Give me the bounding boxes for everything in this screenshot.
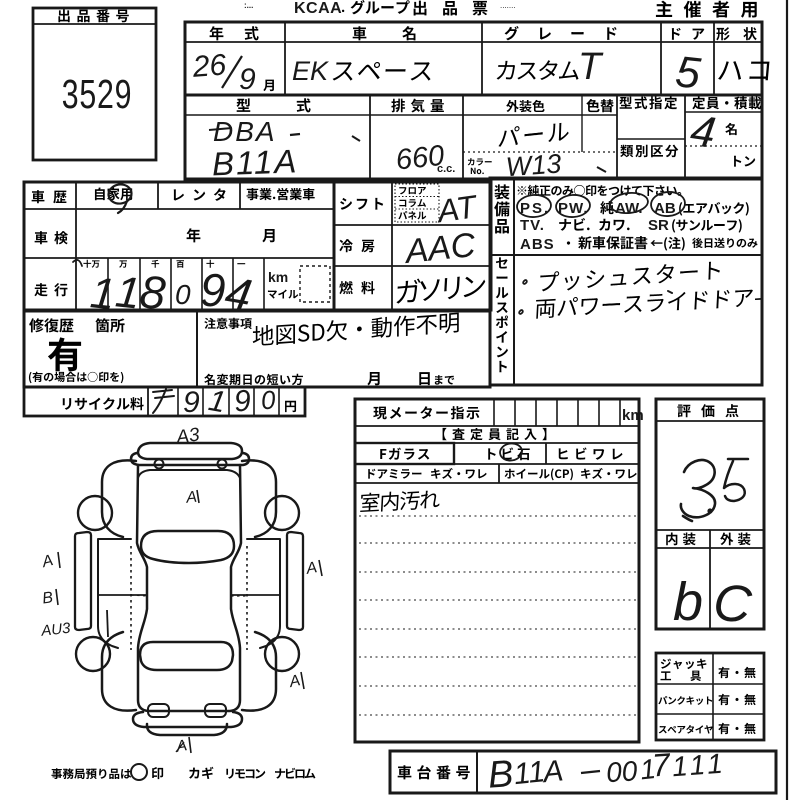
svg-text:km: km — [268, 269, 288, 285]
svg-text:B11A: B11A — [211, 142, 299, 182]
svg-text:DBA: DBA — [213, 116, 277, 147]
svg-text:AU3: AU3 — [39, 620, 71, 640]
svg-text:111: 111 — [671, 747, 728, 782]
svg-text:00: 00 — [605, 755, 639, 788]
svg-text:KCAA: KCAA — [294, 0, 342, 17]
svg-text:SR: SR — [648, 217, 669, 234]
svg-text:9: 9 — [239, 63, 256, 96]
svg-text:AT: AT — [433, 188, 481, 230]
svg-text:EK: EK — [292, 56, 329, 86]
svg-text:9: 9 — [233, 384, 253, 418]
svg-text:26: 26 — [191, 49, 228, 84]
svg-text:3529: 3529 — [62, 70, 132, 117]
svg-text:C: C — [711, 573, 755, 635]
svg-text:B: B — [487, 753, 515, 797]
svg-text:A: A — [184, 489, 197, 507]
svg-text:ABS: ABS — [520, 236, 555, 253]
svg-text:A3: A3 — [174, 424, 201, 448]
svg-text:9: 9 — [183, 386, 200, 419]
svg-text:AAC: AAC — [402, 226, 478, 271]
svg-text:T: T — [578, 46, 604, 88]
svg-text:TV.: TV. — [520, 217, 545, 234]
svg-text:AW.: AW. — [615, 200, 643, 217]
svg-text::...: :... — [244, 1, 253, 10]
svg-text:km: km — [622, 407, 644, 424]
svg-text:.......: ....... — [500, 1, 516, 10]
svg-text:9: 9 — [200, 264, 226, 316]
svg-text:b: b — [673, 572, 703, 632]
svg-text:0: 0 — [175, 279, 191, 310]
svg-text:660: 660 — [394, 140, 445, 177]
